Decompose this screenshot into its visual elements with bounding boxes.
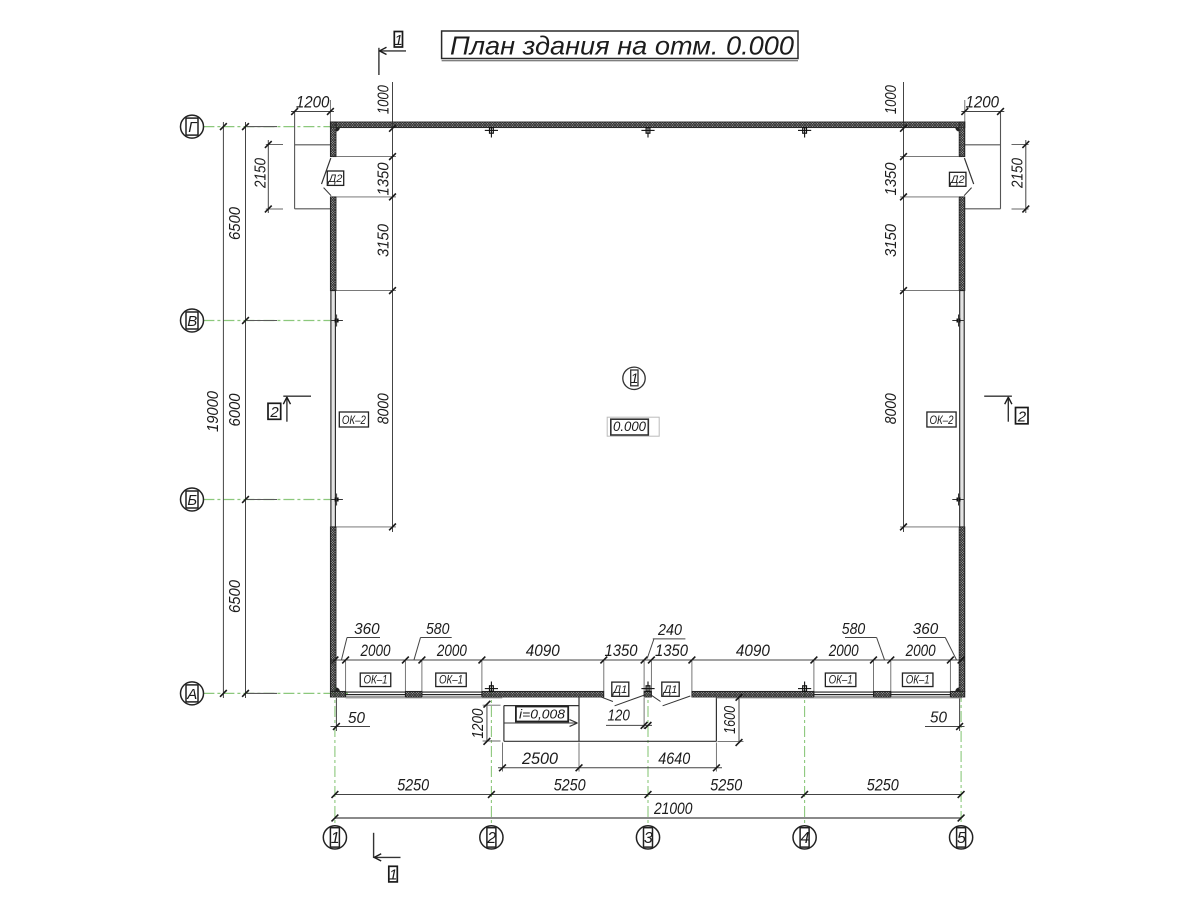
svg-text:1000: 1000 bbox=[376, 85, 393, 114]
svg-text:Д2: Д2 bbox=[949, 174, 965, 186]
svg-text:Д1: Д1 bbox=[662, 684, 678, 696]
svg-text:4: 4 bbox=[800, 830, 809, 847]
svg-text:ОК–1: ОК–1 bbox=[829, 674, 853, 686]
svg-text:5: 5 bbox=[957, 830, 966, 847]
svg-text:240: 240 bbox=[657, 622, 682, 639]
svg-text:1350: 1350 bbox=[883, 162, 900, 195]
svg-text:Б: Б bbox=[187, 492, 197, 509]
svg-text:2000: 2000 bbox=[360, 641, 391, 660]
svg-text:2: 2 bbox=[1017, 409, 1027, 426]
svg-text:6000: 6000 bbox=[227, 393, 244, 426]
svg-text:0.000: 0.000 bbox=[613, 419, 646, 434]
svg-text:1350: 1350 bbox=[605, 641, 638, 660]
svg-text:6500: 6500 bbox=[227, 580, 244, 613]
svg-text:8000: 8000 bbox=[376, 393, 393, 424]
svg-text:5250: 5250 bbox=[867, 776, 899, 795]
svg-text:50: 50 bbox=[348, 710, 365, 727]
svg-text:2000: 2000 bbox=[905, 641, 936, 660]
svg-text:2: 2 bbox=[486, 830, 496, 847]
svg-text:Д2: Д2 bbox=[327, 173, 343, 185]
svg-text:В: В bbox=[187, 313, 197, 330]
svg-text:1350: 1350 bbox=[655, 641, 688, 660]
svg-text:А: А bbox=[186, 686, 197, 703]
svg-text:1: 1 bbox=[331, 830, 340, 847]
svg-text:1: 1 bbox=[631, 370, 639, 386]
svg-text:1200: 1200 bbox=[470, 708, 487, 738]
svg-text:4090: 4090 bbox=[526, 641, 560, 660]
svg-text:2000: 2000 bbox=[828, 641, 859, 660]
svg-text:120: 120 bbox=[607, 708, 630, 725]
svg-text:ОК–1: ОК–1 bbox=[439, 674, 463, 686]
svg-text:3150: 3150 bbox=[376, 224, 393, 257]
svg-text:2500: 2500 bbox=[521, 749, 558, 768]
svg-text:2000: 2000 bbox=[436, 641, 467, 660]
svg-text:1200: 1200 bbox=[966, 93, 1000, 112]
svg-text:1: 1 bbox=[389, 867, 397, 884]
svg-text:580: 580 bbox=[842, 621, 866, 638]
svg-text:50: 50 bbox=[930, 710, 947, 727]
svg-text:1600: 1600 bbox=[722, 706, 739, 734]
svg-text:2150: 2150 bbox=[1010, 158, 1027, 189]
svg-text:4090: 4090 bbox=[736, 641, 770, 660]
svg-text:19000: 19000 bbox=[205, 391, 222, 432]
svg-text:3: 3 bbox=[644, 830, 653, 847]
svg-text:Д1: Д1 bbox=[611, 684, 627, 696]
svg-text:ОК–1: ОК–1 bbox=[906, 674, 930, 686]
svg-text:4640: 4640 bbox=[658, 749, 690, 768]
svg-text:360: 360 bbox=[913, 621, 939, 638]
svg-text:1200: 1200 bbox=[296, 93, 330, 112]
svg-text:5250: 5250 bbox=[554, 776, 586, 795]
svg-text:3150: 3150 bbox=[883, 224, 900, 257]
svg-text:2150: 2150 bbox=[253, 158, 270, 189]
svg-text:8000: 8000 bbox=[883, 393, 900, 424]
svg-text:ОК–2: ОК–2 bbox=[342, 415, 367, 427]
svg-text:1350: 1350 bbox=[376, 162, 393, 195]
svg-text:1000: 1000 bbox=[883, 85, 900, 114]
svg-text:580: 580 bbox=[426, 621, 450, 638]
svg-text:ОК–2: ОК–2 bbox=[930, 415, 955, 427]
svg-text:i=0,008: i=0,008 bbox=[519, 708, 565, 722]
svg-text:ОК–1: ОК–1 bbox=[364, 674, 388, 686]
svg-text:1: 1 bbox=[394, 32, 402, 49]
svg-text:6500: 6500 bbox=[227, 207, 244, 240]
svg-text:360: 360 bbox=[354, 621, 380, 638]
svg-text:План здания на отм. 0.000: План здания на отм. 0.000 bbox=[450, 31, 795, 61]
svg-text:5250: 5250 bbox=[397, 776, 429, 795]
svg-text:2: 2 bbox=[269, 404, 279, 421]
svg-text:21000: 21000 bbox=[653, 799, 693, 818]
svg-text:5250: 5250 bbox=[710, 776, 742, 795]
